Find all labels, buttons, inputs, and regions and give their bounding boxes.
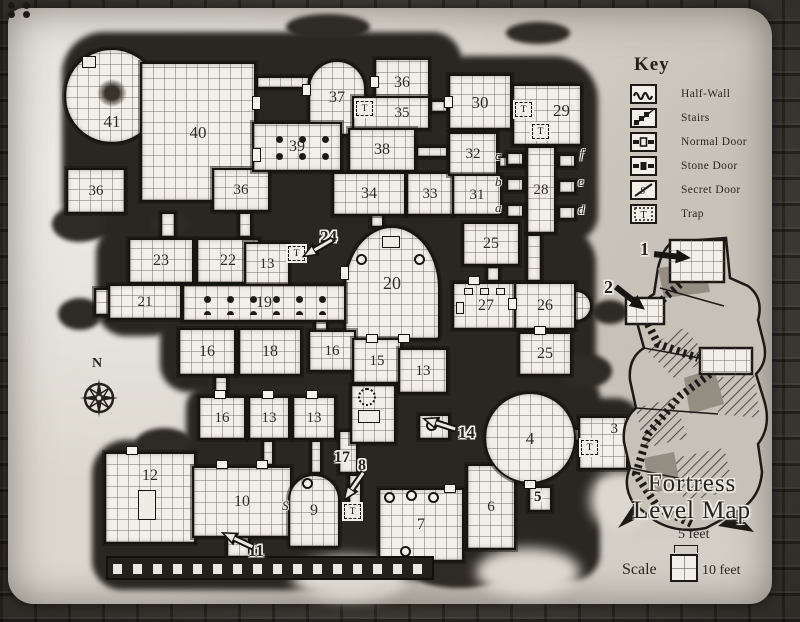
room-28: 28 <box>526 146 556 234</box>
room-number: 9 <box>290 476 338 546</box>
room-26: 26 <box>514 282 576 330</box>
room-number: 28 <box>528 148 554 232</box>
cell-label-a: a <box>495 200 502 216</box>
door <box>508 298 517 310</box>
door <box>444 96 453 108</box>
pillar <box>428 492 439 503</box>
scale-square <box>670 554 698 582</box>
pillar <box>356 254 367 265</box>
room-number: 33 <box>408 174 452 214</box>
room-36-mid: 36 <box>212 168 270 212</box>
room-13-east: 13 <box>398 348 448 394</box>
cell-label-d: d <box>578 202 585 218</box>
corridor <box>238 212 252 238</box>
rubble-speck <box>506 22 570 44</box>
callout-1: 1 <box>640 240 649 258</box>
room-39: 39 <box>252 122 342 172</box>
corridor <box>416 146 448 158</box>
altar <box>382 236 400 248</box>
door <box>252 96 261 110</box>
normal-door-icon <box>630 132 657 152</box>
door <box>370 76 379 88</box>
small-dots <box>0 0 34 18</box>
room-25-north: 25 <box>462 222 520 266</box>
door <box>306 390 318 399</box>
door <box>444 484 456 493</box>
room-number: 38 <box>350 130 414 170</box>
key-label: Half-Wall <box>681 88 730 100</box>
room-number: 25 <box>464 224 518 264</box>
room-9: 9 <box>288 474 340 548</box>
stairs-icon <box>630 108 657 128</box>
furniture <box>456 302 464 314</box>
door <box>340 266 349 280</box>
room-34: 34 <box>332 172 406 216</box>
trap-icon: T <box>630 204 657 224</box>
door <box>126 446 138 455</box>
room-number: 18 <box>240 330 300 374</box>
door <box>468 276 480 285</box>
room-number: 16 <box>200 398 244 438</box>
trap-letter: T <box>587 443 593 453</box>
cell-label-f: f <box>580 146 584 162</box>
fortress-level-map: 41 40 36 36 37 36 35 39 38 34 33 30 29 3… <box>0 0 800 622</box>
cell-box-b <box>506 178 524 192</box>
room-number: 13 <box>294 398 334 438</box>
room-25-south: 25 <box>518 332 572 376</box>
room-number: 25 <box>520 334 570 374</box>
key-label: Trap <box>681 208 704 220</box>
parchment-wash <box>476 548 580 596</box>
door <box>534 326 546 335</box>
door <box>262 390 274 399</box>
bed <box>358 410 380 423</box>
pillar-dots <box>264 130 330 164</box>
pillar <box>384 492 395 503</box>
pillar <box>302 478 313 489</box>
stone-door-icon <box>630 156 657 176</box>
scale-ticks <box>674 545 698 553</box>
room-13-south-b: 13 <box>292 396 336 440</box>
door <box>252 148 261 162</box>
door <box>214 390 226 399</box>
rubble-speck <box>286 14 370 40</box>
room-number: 13 <box>400 350 446 392</box>
callout-17: 17 <box>334 450 350 466</box>
furniture <box>496 288 505 295</box>
room-13-south-a: 13 <box>248 396 290 440</box>
room-36-west: 36 <box>66 168 126 214</box>
key-label: Normal Door <box>681 136 747 148</box>
room-number: 31 <box>454 176 500 214</box>
cell-box-e <box>558 180 576 194</box>
room-number: 21 <box>110 286 180 318</box>
room-number: 13 <box>250 398 288 438</box>
key-row-normal-door: Normal Door <box>630 132 747 152</box>
furniture <box>480 288 489 295</box>
door <box>398 334 410 343</box>
room-number: 10 <box>194 468 290 536</box>
cell-label-e: e <box>578 174 584 190</box>
room-number: 16 <box>180 330 234 374</box>
key-row-secret-door: S Secret Door <box>630 180 741 200</box>
key-title: Key <box>634 54 772 76</box>
trap-letter: T <box>538 127 544 137</box>
room-18: 18 <box>238 328 302 376</box>
room-21: 21 <box>108 284 182 320</box>
scale-large-label: 10 feet <box>702 563 740 579</box>
secret-letter: S <box>640 186 645 197</box>
room-15: 15 <box>352 338 402 384</box>
key-label: Stone Door <box>681 160 738 172</box>
key-row-stone-door: Stone Door <box>630 156 738 176</box>
table <box>138 490 156 520</box>
room-16-south: 16 <box>198 396 246 440</box>
secret-door-marker: S <box>282 498 289 514</box>
crenellated-wall <box>106 556 434 580</box>
corridor <box>486 266 500 282</box>
room-number: 13 <box>246 244 288 284</box>
corridor <box>310 440 322 474</box>
trap-marker: T <box>532 124 549 139</box>
cell-label-b: b <box>495 174 502 190</box>
room-number: 16 <box>310 332 354 370</box>
map-key: Key Half-Wall Stairs Normal Door Stone D… <box>630 54 772 76</box>
room-32: 32 <box>448 132 498 176</box>
compass-north-label: N <box>92 356 102 372</box>
room-5-label: 5 <box>534 490 542 505</box>
room-13-north: 13 <box>244 242 290 286</box>
corridor <box>160 212 176 238</box>
scale-small-label: 5 feet <box>678 527 709 543</box>
map-title-line1: Fortress <box>608 470 776 498</box>
trap-letter: T <box>362 104 368 114</box>
key-row-trap: T Trap <box>630 204 704 224</box>
door <box>302 84 311 96</box>
trap-letter: T <box>521 105 527 115</box>
key-label: Stairs <box>681 112 710 124</box>
room-23: 23 <box>128 238 194 284</box>
room-number: 36 <box>214 170 268 210</box>
corridor <box>526 234 542 282</box>
trap-marker: T <box>344 504 361 519</box>
cell-box-a <box>506 204 524 218</box>
half-wall-icon <box>630 84 657 104</box>
corridor <box>370 214 384 228</box>
door <box>256 460 268 469</box>
room-number: 15 <box>354 340 400 382</box>
callout-14: 14 <box>458 424 475 441</box>
door <box>524 480 536 489</box>
room-30: 30 <box>448 74 512 130</box>
room-38: 38 <box>348 128 416 172</box>
room-10: 10 <box>192 466 292 538</box>
pillar-dots <box>192 291 336 315</box>
scale-label: Scale <box>622 561 657 579</box>
room-16-west: 16 <box>178 328 236 376</box>
room-number: 4 <box>486 394 574 482</box>
cell-label-c: c <box>495 148 501 164</box>
room-number: 34 <box>334 174 404 214</box>
cell-box-d <box>558 206 576 220</box>
trap-marker: T <box>515 102 532 117</box>
pillar <box>400 546 411 557</box>
room-19-pillared-hall: 19 <box>182 284 346 322</box>
door <box>216 460 228 469</box>
key-row-stairs: Stairs <box>630 108 710 128</box>
room-number: 23 <box>130 240 192 282</box>
map-title-line2: Level Map <box>608 497 776 525</box>
cell-box-c <box>506 152 524 166</box>
room-number: 32 <box>450 134 496 174</box>
crate <box>82 56 96 68</box>
furniture <box>464 288 473 295</box>
room-33: 33 <box>406 172 454 216</box>
trap-marker: T <box>356 101 373 116</box>
pillar <box>406 490 417 501</box>
room-number: 26 <box>516 284 574 328</box>
room-16-mid: 16 <box>308 330 356 372</box>
key-label: Secret Door <box>681 184 741 196</box>
room-number: 36 <box>68 170 124 212</box>
secret-door-icon: S <box>630 180 657 200</box>
trap-marker: T <box>581 440 598 455</box>
room-number: 30 <box>450 76 510 128</box>
trap-letter: T <box>641 210 647 221</box>
room-4: 4 <box>484 392 576 484</box>
trap-letter: T <box>350 507 356 517</box>
rubble <box>92 74 132 112</box>
cell-box-f <box>558 154 576 168</box>
pillar <box>414 254 425 265</box>
key-row-half-wall: Half-Wall <box>630 84 730 104</box>
round-rug <box>358 388 376 406</box>
door <box>366 334 378 343</box>
compass-rose <box>78 377 120 424</box>
